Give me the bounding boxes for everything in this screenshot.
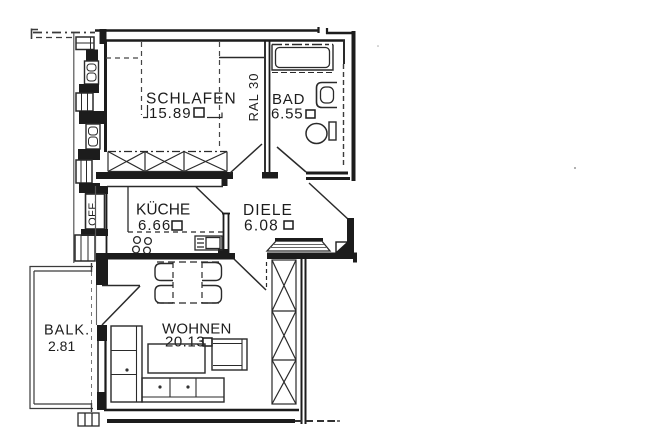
svg-text:15.89: 15.89 bbox=[149, 105, 192, 122]
svg-text:RAL 30: RAL 30 bbox=[246, 73, 261, 122]
svg-text:DIELE: DIELE bbox=[243, 202, 293, 219]
svg-text:OFF.: OFF. bbox=[87, 200, 99, 226]
svg-text:BALK.: BALK. bbox=[44, 323, 90, 339]
svg-text:KÜCHE: KÜCHE bbox=[136, 201, 190, 219]
svg-text:6.55: 6.55 bbox=[271, 106, 303, 123]
svg-text:2.81: 2.81 bbox=[48, 338, 75, 354]
svg-text:6.08: 6.08 bbox=[244, 218, 279, 235]
svg-text:20.13: 20.13 bbox=[165, 334, 205, 351]
